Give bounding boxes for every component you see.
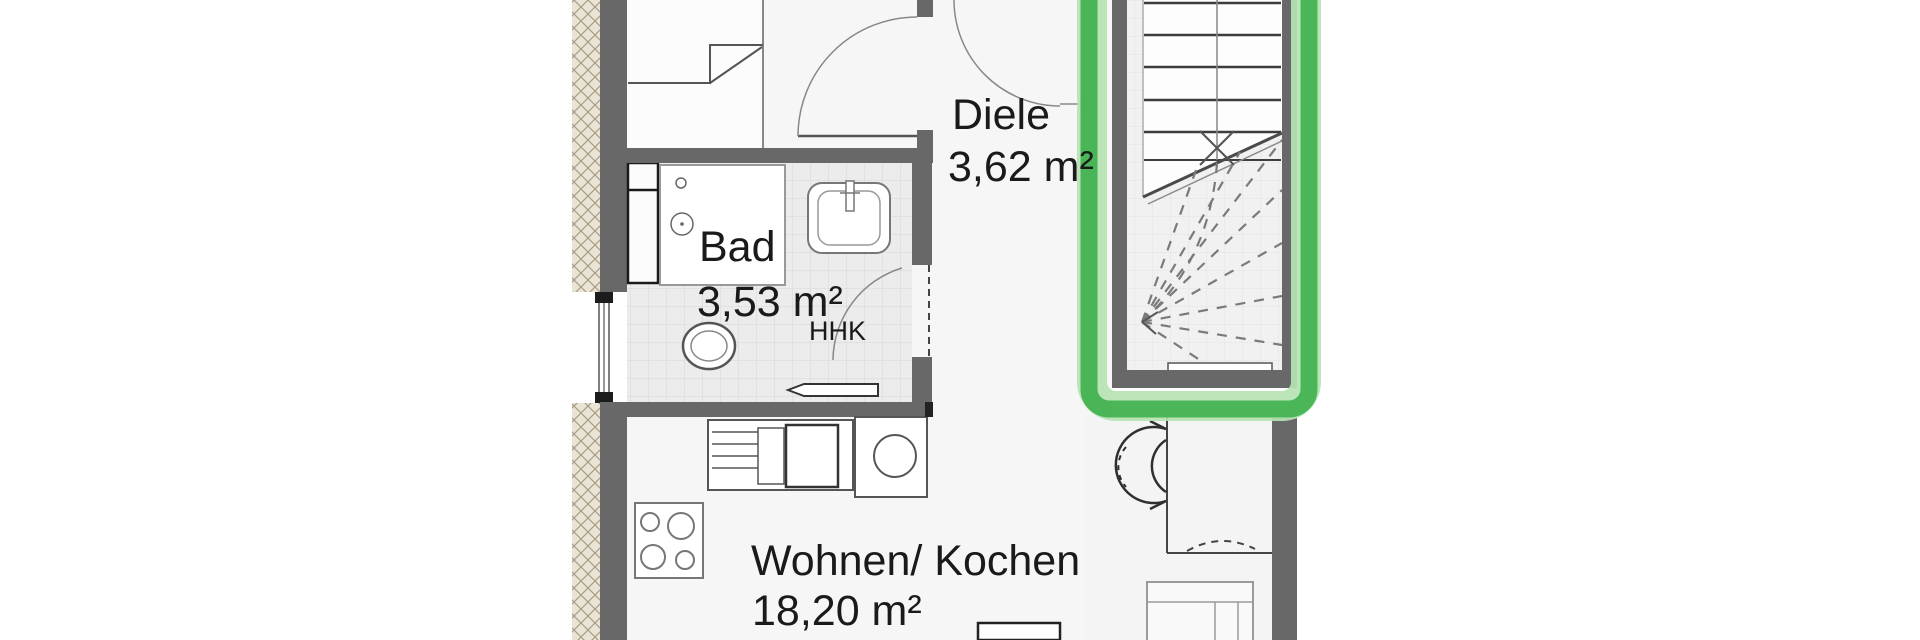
toilet	[683, 323, 735, 369]
room-label-diele: Diele	[952, 91, 1050, 139]
room-area-diele: 3,62 m²	[948, 143, 1094, 191]
door-post-top	[917, 0, 933, 17]
kitchen-unit-round-sink	[855, 417, 927, 497]
staircase	[1112, 0, 1297, 388]
kitchen-counter-sink	[708, 420, 853, 490]
hob-4-rings	[635, 503, 703, 578]
radiator-label: HHK	[809, 316, 866, 346]
exterior-wall-left	[572, 0, 627, 640]
right-wall	[1272, 418, 1297, 640]
floor-plan-canvas: Diele 3,62 m² Bad 3,53 m² HHK Wohnen/ Ko…	[0, 0, 1920, 640]
room-label-bad: Bad	[699, 223, 776, 271]
insulation-hatch-lower	[572, 403, 600, 640]
armchair	[1147, 582, 1253, 640]
washbasin	[808, 181, 890, 253]
insulation-hatch-upper	[572, 0, 600, 292]
duct-niche	[628, 163, 658, 283]
room-area-wohnen-kochen: 18,20 m²	[752, 587, 922, 635]
room-label-wohnen-kochen: Wohnen/ Kochen	[751, 537, 1080, 585]
wall-end-cap	[925, 402, 933, 417]
towel-radiator	[788, 384, 878, 396]
side-table	[978, 623, 1060, 640]
door-post-mid	[917, 130, 933, 150]
floor-plan-drawing: Diele 3,62 m² Bad 3,53 m² HHK Wohnen/ Ko…	[0, 0, 1920, 640]
window	[572, 292, 627, 403]
